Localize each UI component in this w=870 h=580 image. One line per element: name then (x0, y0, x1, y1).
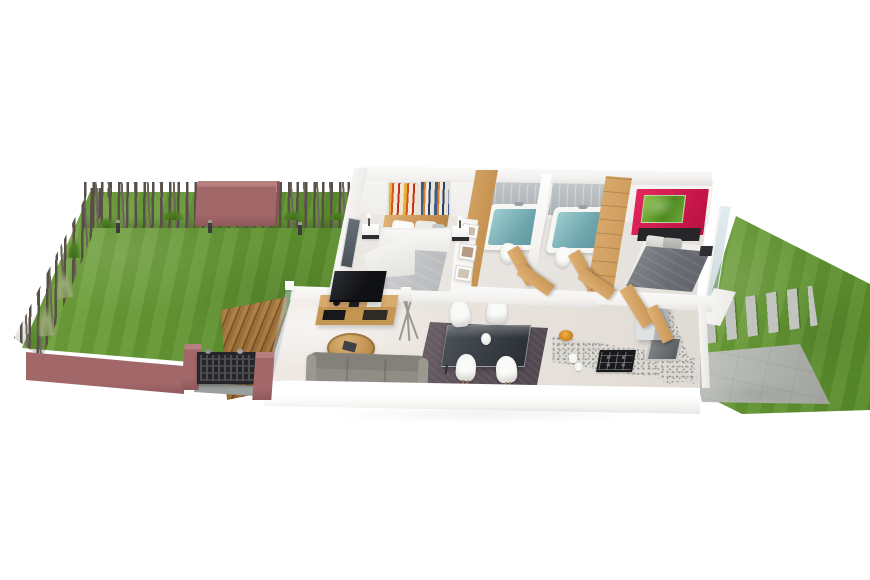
bbq-grill (197, 352, 257, 384)
floor-plan-scene (0, 0, 870, 580)
bbq-utensil-icon (205, 349, 211, 354)
bbq-pillar (252, 352, 274, 400)
pink-boundary-wall (24, 346, 186, 396)
ground-shadow (268, 410, 698, 424)
ground-shadow (706, 384, 846, 410)
bbq-grate (200, 355, 254, 381)
boundary-wall-bbq (0, 0, 870, 580)
bbq-utensil-icon (237, 349, 243, 354)
